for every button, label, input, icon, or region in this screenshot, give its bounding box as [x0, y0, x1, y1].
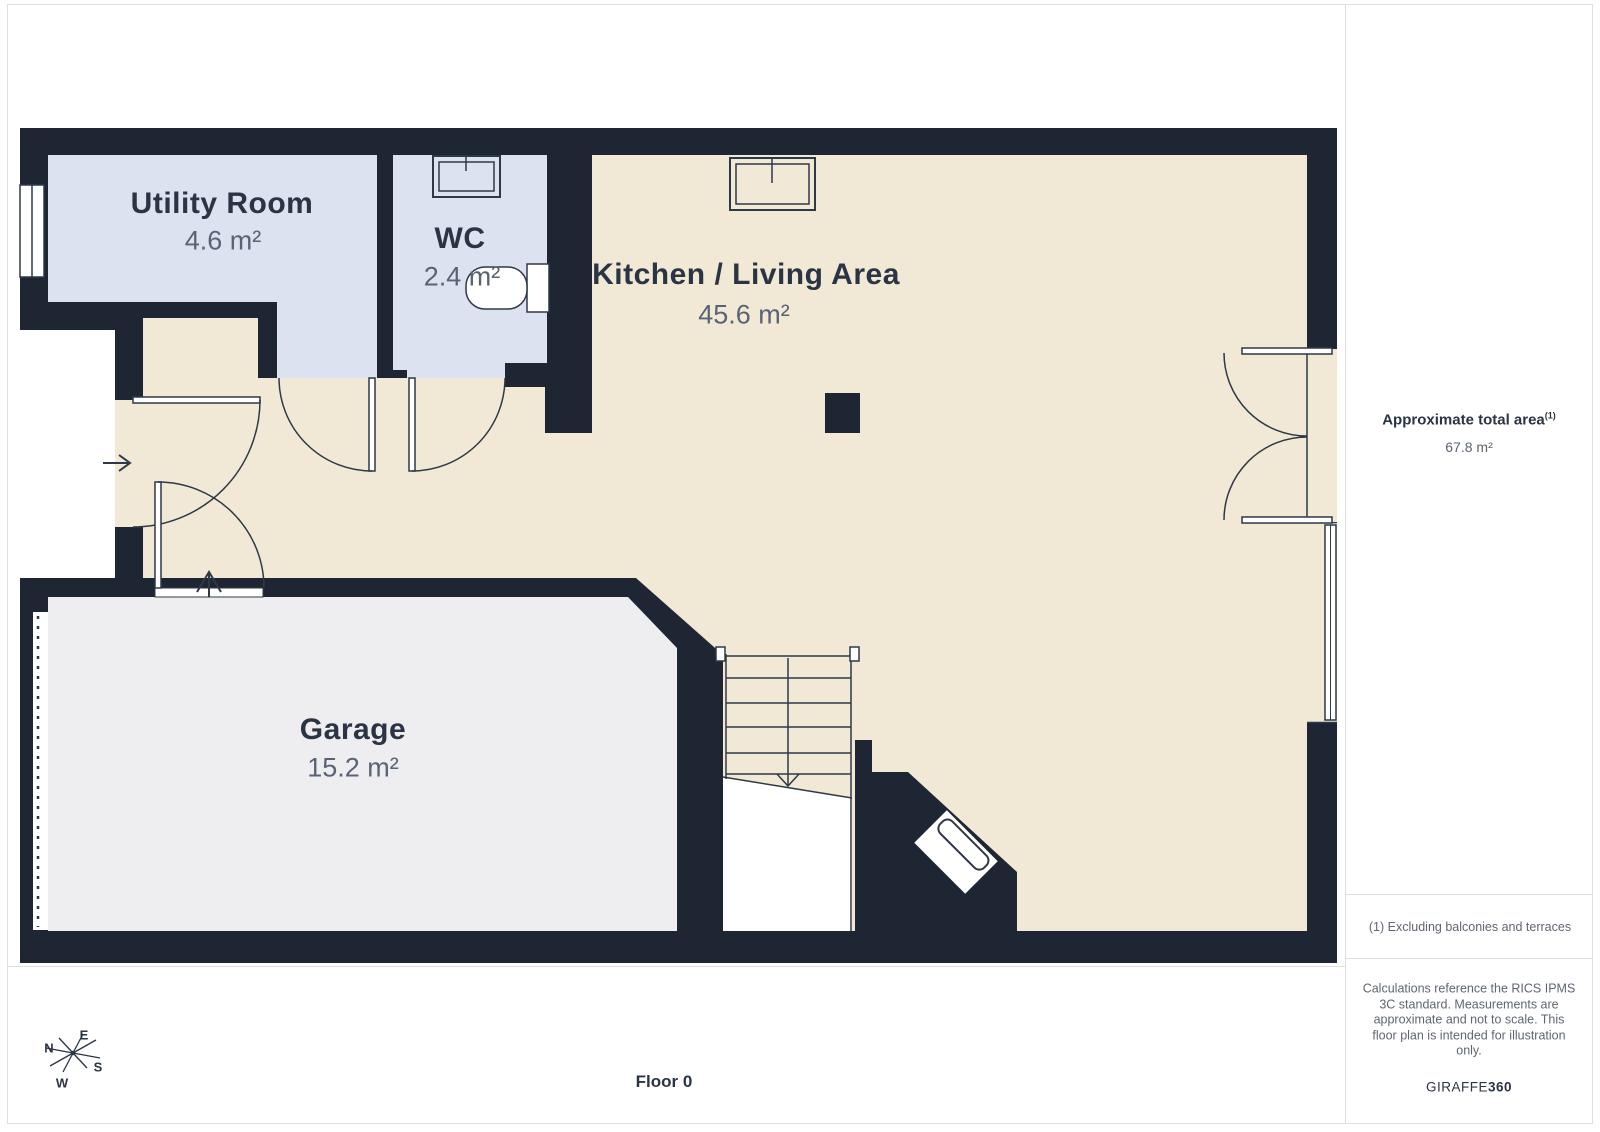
compass-w-label: W — [56, 1076, 68, 1091]
room-area-kitchen-living: 45.6 m² — [698, 300, 790, 331]
column — [825, 393, 860, 433]
floorplan-page: Utility Room 4.6 m² WC 2.4 m² Kitchen / … — [0, 0, 1600, 1132]
room-label-garage: Garage — [300, 713, 406, 747]
window-utility-icon — [20, 185, 44, 277]
floor-label: Floor 0 — [636, 1072, 693, 1092]
brand-logo: GIRAFFE360 — [1426, 1080, 1512, 1095]
compass-n-label: N — [44, 1041, 53, 1056]
room-label-wc: WC — [435, 222, 486, 256]
room-area-garage: 15.2 m² — [307, 753, 399, 784]
brand-suffix: 360 — [1488, 1080, 1512, 1095]
wc-sink-icon — [433, 156, 500, 197]
total-area-title: Approximate total area(1) — [1382, 410, 1556, 429]
brand-name: GIRAFFE — [1426, 1080, 1488, 1095]
compass-icon — [46, 1034, 100, 1072]
kitchen-sink-icon — [730, 158, 815, 210]
sidebar-footnote: (1) Excluding balconies and terraces — [1369, 920, 1571, 934]
room-area-utility: 4.6 m² — [185, 226, 262, 257]
total-area-value: 67.8 m² — [1445, 439, 1492, 455]
total-area-footnote-marker: (1) — [1545, 410, 1556, 420]
total-area-title-text: Approximate total area — [1382, 412, 1545, 429]
sidebar-disclaimer: Calculations reference the RICS IPMS 3C … — [1360, 981, 1578, 1059]
garage-door-icon — [33, 612, 48, 930]
compass-e-label: E — [80, 1028, 89, 1043]
room-label-utility: Utility Room — [131, 187, 314, 221]
room-area-wc: 2.4 m² — [424, 262, 501, 293]
stair-void — [723, 777, 852, 931]
compass-s-label: S — [94, 1060, 103, 1075]
room-label-kitchen-living: Kitchen / Living Area — [592, 258, 900, 292]
window-living-icon — [1307, 522, 1337, 723]
floor-plan — [0, 0, 1600, 1132]
